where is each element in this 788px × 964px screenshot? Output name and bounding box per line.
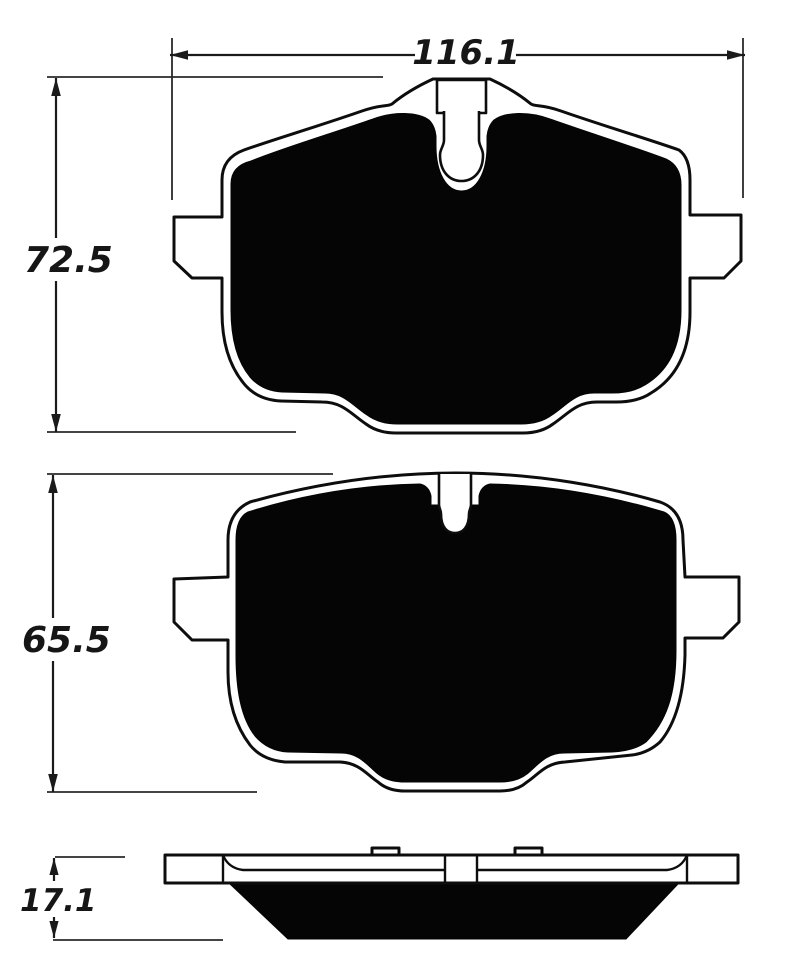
side-view-left-lug [372,848,399,855]
arrowhead-up [49,858,58,875]
side-view-right-lug [515,848,542,855]
top-pad-abutment-slot [437,80,486,113]
brake-pad-dimension-drawing: 116.1 72.5 65.5 17.1 [0,0,788,964]
middle-pad-front-view [174,473,739,791]
top-pad-front-view [174,79,741,433]
technical-drawing-svg: 116.1 72.5 65.5 17.1 [0,0,788,964]
arrowhead-up [48,475,58,493]
arrowhead-down [51,414,61,432]
arrowhead-down [48,774,58,792]
middle-pad-height-label: 65.5 [22,620,111,661]
arrowhead-down [49,921,58,938]
top-pad-wear-channel-fill [440,111,483,181]
side-view [165,848,738,939]
arrowhead-up [51,78,61,96]
top-pad-height-label: 72.5 [24,240,113,281]
thickness-dimension-label: 17.1 [20,883,97,919]
side-view-friction-material [230,884,678,939]
width-dimension-label: 116.1 [412,33,520,73]
